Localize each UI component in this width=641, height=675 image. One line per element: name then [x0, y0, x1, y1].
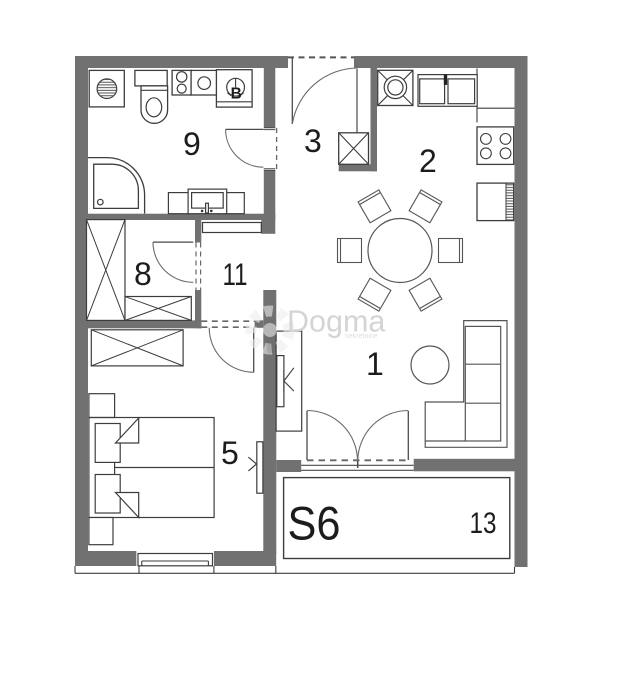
- svg-text:9: 9: [183, 126, 201, 162]
- svg-text:S6: S6: [288, 497, 341, 550]
- svg-text:8: 8: [134, 256, 152, 292]
- svg-text:11: 11: [223, 256, 248, 292]
- svg-text:3: 3: [304, 123, 322, 159]
- svg-text:B: B: [231, 85, 242, 102]
- svg-text:13: 13: [470, 507, 497, 540]
- svg-text:5: 5: [221, 435, 239, 471]
- svg-text:1: 1: [366, 346, 384, 382]
- svg-text:nekretnine: nekretnine: [345, 333, 378, 340]
- svg-text:2: 2: [419, 143, 437, 179]
